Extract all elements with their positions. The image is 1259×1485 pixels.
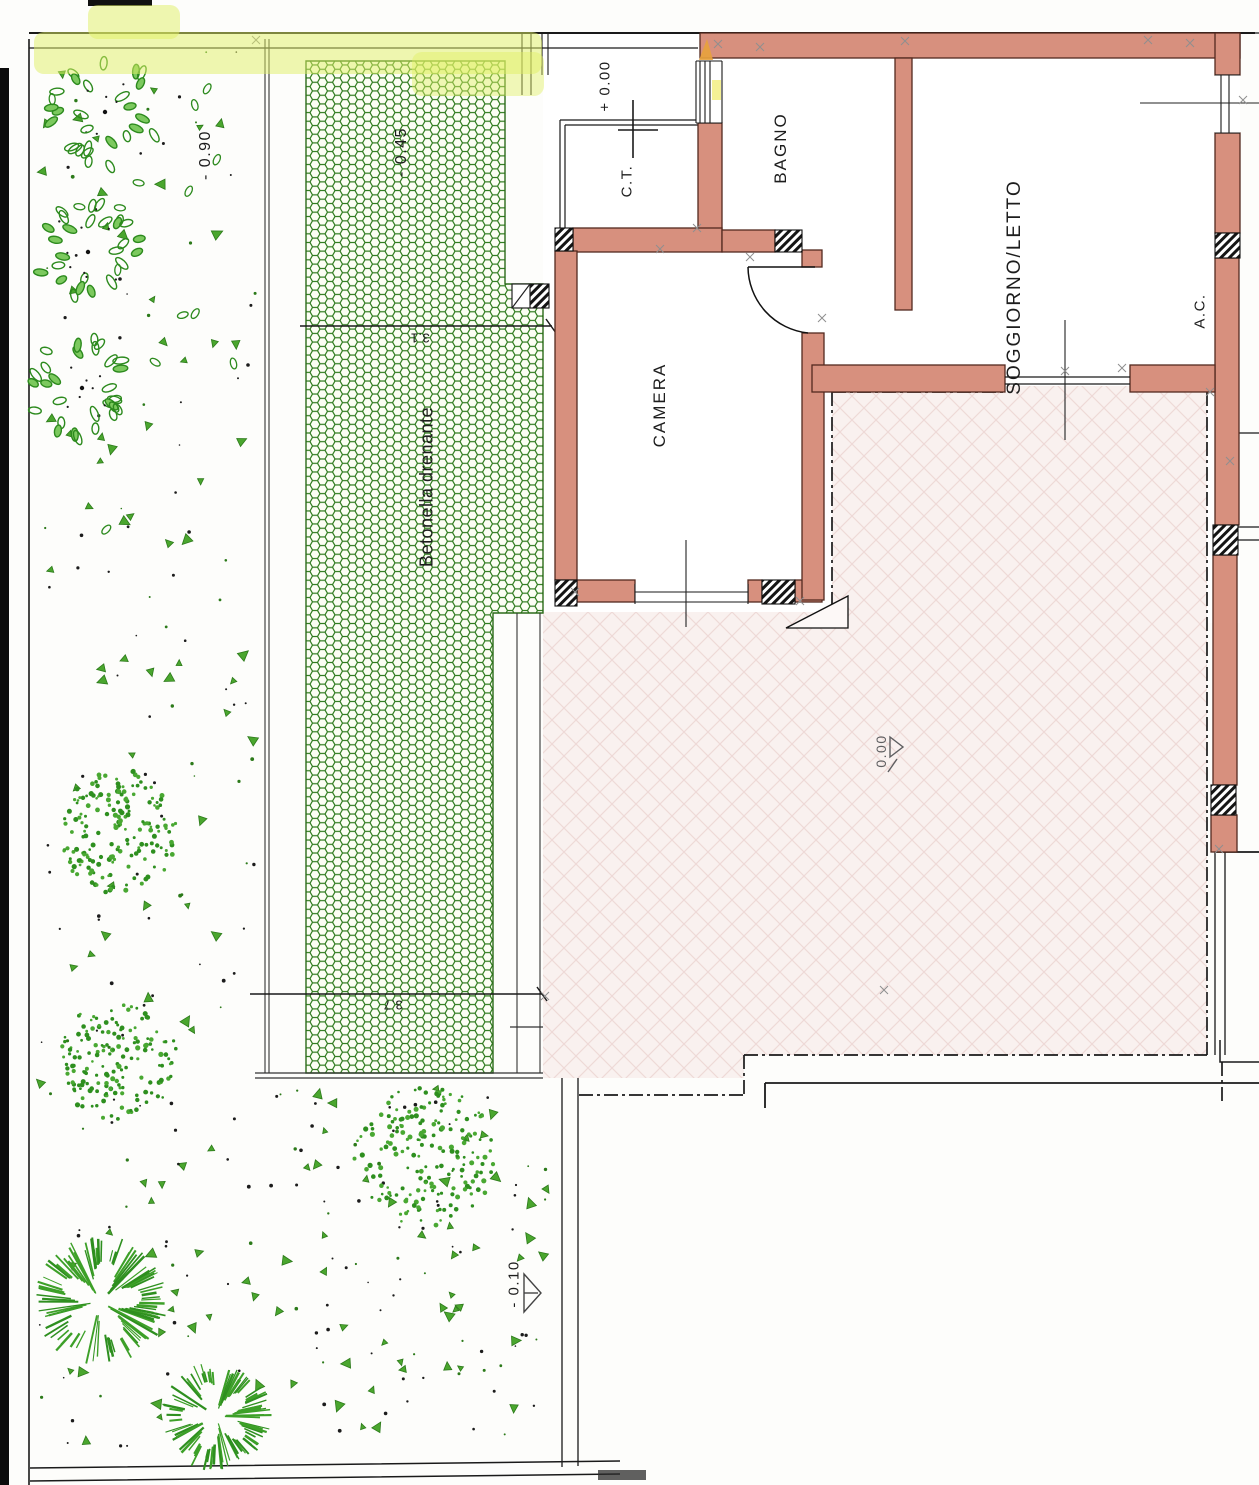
level-label-garden-south: - 0.10 — [506, 1260, 523, 1307]
pier-hatch — [775, 230, 802, 252]
pier-hatch — [762, 580, 795, 604]
wall-east — [1215, 258, 1239, 525]
site-plan-scan: - 0.90 - 0.45 + 0.00 C.T. BAGNO SOGGIORN… — [0, 0, 1259, 1485]
pier-hatch — [1215, 233, 1240, 258]
wall-ct-south — [573, 228, 722, 252]
dimension-label-south: 3.7 — [383, 998, 403, 1013]
paving-material-label: Betonella drenante — [417, 407, 438, 567]
level-label-entrance: + 0.00 — [597, 60, 614, 111]
yellow-mark — [712, 80, 721, 100]
dimension-label-north: 3.1 — [410, 331, 430, 346]
wall-camera-west — [555, 251, 577, 580]
room-label-camera: CAMERA — [650, 363, 670, 448]
room-label-bagno: BAGNO — [771, 112, 791, 183]
room-label-soggiorno: SOGGIORNO/LETTO — [1004, 179, 1026, 394]
wall-soggiorno-south — [812, 365, 1005, 392]
label-ac: A.C. — [1192, 293, 1209, 328]
base-surfaces — [543, 33, 1240, 1078]
level-label-paving-strip: - 0.45 — [393, 127, 411, 177]
pier-hatch — [1213, 525, 1238, 555]
pier-hatch — [1211, 785, 1236, 815]
plan-canvas — [0, 0, 1259, 1485]
pier-hatch — [530, 284, 549, 308]
highlight-stroke — [88, 5, 180, 39]
drain-triangle-symbol — [512, 284, 530, 308]
window — [1215, 75, 1240, 133]
level-label-patio: 0.00 — [873, 734, 889, 767]
garden-level-marker — [524, 1274, 541, 1312]
pier-hatch — [555, 228, 573, 251]
highlight-stroke — [412, 52, 544, 96]
room-label-ct: C.T. — [619, 165, 636, 198]
scan-edge-bar — [0, 68, 9, 1485]
window — [635, 584, 748, 604]
level-label-garden-north: - 0.90 — [197, 130, 215, 180]
wall-north — [700, 33, 1240, 58]
wall-bagno-soggiorno — [895, 58, 912, 310]
